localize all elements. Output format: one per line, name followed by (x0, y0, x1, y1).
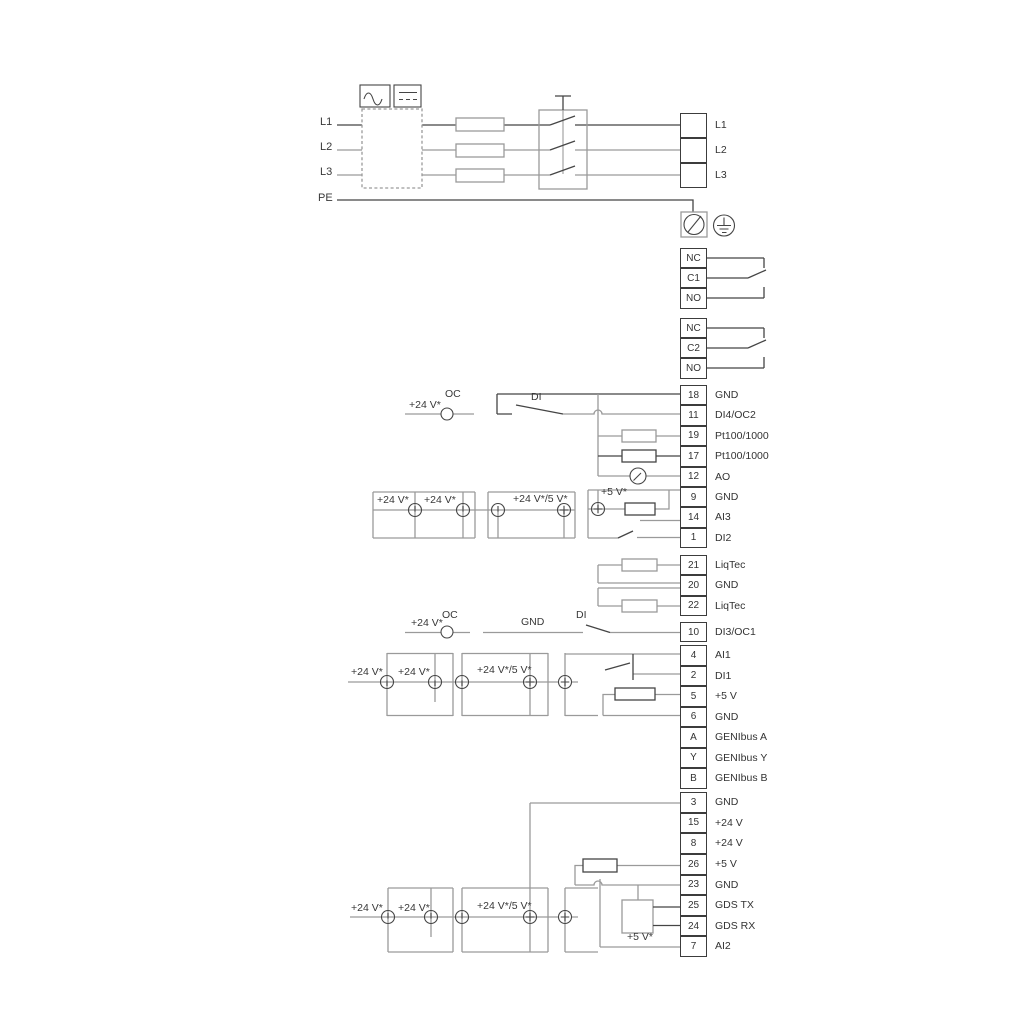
terminal-cell: 23 (680, 875, 707, 896)
terminal-cell: 12 (680, 467, 707, 487)
terminal-cell: 18 (680, 385, 707, 405)
relay-contacts (707, 258, 766, 368)
terminal-label: GND (715, 875, 738, 896)
supply-label: +24 V*/5 V* (477, 901, 532, 912)
di-label: DI (531, 392, 542, 403)
supply-label: +24 V* (409, 400, 441, 411)
terminal-label: +24 V (715, 833, 743, 854)
terminal-cell: A (680, 727, 707, 748)
terminal-cell: Y (680, 748, 707, 769)
terminal-label: GENIbus Y (715, 748, 767, 769)
supply-label: +24 V*/5 V* (477, 665, 532, 676)
terminal-label: DI2 (715, 528, 731, 548)
gds-sensor-box (622, 900, 653, 933)
io1-wiring (405, 394, 680, 476)
terminal-cell: NC (680, 248, 707, 268)
terminal-label: AI1 (715, 645, 731, 666)
supply-label: +24 V* (351, 667, 383, 678)
supply-label: +24 V* (351, 903, 383, 914)
terminal-label: GND (715, 707, 738, 728)
terminal-cell (680, 163, 707, 188)
label-pe-in: PE (318, 192, 333, 204)
supply-label: +24 V* (398, 667, 430, 678)
wiring-diagram: L1 L2 L3 PE +24 V* OC DI +24 V* +24 V* +… (0, 0, 1024, 1024)
converter-symbol (360, 85, 421, 107)
terminal-label: Pt100/1000 (715, 446, 769, 466)
supply-label: +24 V* (377, 495, 409, 506)
terminal-label: AI3 (715, 507, 731, 527)
terminal-cell (680, 138, 707, 163)
terminal-label: DI1 (715, 666, 731, 687)
terminal-cell: 21 (680, 555, 707, 575)
terminal-cell: 10 (680, 622, 707, 642)
terminal-label: +24 V (715, 813, 743, 834)
terminal-label: +5 V (715, 854, 737, 875)
terminal-label: GDS TX (715, 895, 754, 916)
terminal-cell: 24 (680, 916, 707, 937)
ground-symbols (681, 212, 735, 237)
terminal-label: L2 (715, 138, 727, 163)
wiring-svg (0, 0, 1024, 1024)
label-l3-in: L3 (320, 166, 332, 178)
terminal-label: DI4/OC2 (715, 405, 756, 425)
gnd-label: GND (521, 617, 544, 628)
terminal-cell: 26 (680, 854, 707, 875)
terminal-label: GENIbus B (715, 768, 768, 789)
terminal-label: Pt100/1000 (715, 426, 769, 446)
terminal-label: AO (715, 467, 730, 487)
dashed-module-box (362, 109, 422, 188)
terminal-label: DI3/OC1 (715, 622, 756, 642)
terminal-cell: 5 (680, 686, 707, 707)
terminal-cell: NC (680, 318, 707, 338)
terminal-cell: 17 (680, 446, 707, 466)
terminal-cell: 4 (680, 645, 707, 666)
terminal-cell: C1 (680, 268, 707, 288)
terminal-cell: 20 (680, 575, 707, 595)
terminal-cell: 6 (680, 707, 707, 728)
terminal-label: LiqTec (715, 596, 745, 616)
terminal-cell: 15 (680, 813, 707, 834)
terminal-label: GND (715, 385, 738, 405)
di-label: DI (576, 610, 587, 621)
terminal-cell: 3 (680, 792, 707, 813)
mains-wiring (337, 125, 693, 212)
label-l1-in: L1 (320, 116, 332, 128)
analog-output-meter-icon (630, 468, 646, 484)
open-collector-icon (441, 408, 453, 420)
terminal-cell: C2 (680, 338, 707, 358)
terminal-cell: NO (680, 358, 707, 378)
terminal-label: LiqTec (715, 555, 745, 575)
terminal-cell: 22 (680, 596, 707, 616)
terminal-label: L3 (715, 163, 727, 188)
terminal-cell: NO (680, 288, 707, 308)
terminal-cell: 9 (680, 487, 707, 507)
terminal-label: GND (715, 487, 738, 507)
sensor-group-ai2 (350, 803, 680, 952)
oc-label: OC (445, 389, 461, 400)
liqtec-wiring (598, 559, 680, 612)
label-l2-in: L2 (320, 141, 332, 153)
fuses (456, 118, 504, 182)
terminal-cell: 11 (680, 405, 707, 425)
terminal-label: L1 (715, 113, 727, 138)
supply-label: +24 V* (411, 618, 443, 629)
terminal-cell: 1 (680, 528, 707, 548)
terminal-label: GND (715, 575, 738, 595)
terminal-cell: 14 (680, 507, 707, 527)
terminal-label: GDS RX (715, 916, 755, 937)
supply-label: +24 V*/5 V* (513, 494, 568, 505)
oc-label: OC (442, 610, 458, 621)
terminal-cell: 25 (680, 895, 707, 916)
supply-label: +5 V* (601, 487, 627, 498)
terminal-cell: 19 (680, 426, 707, 446)
terminal-label: AI2 (715, 936, 731, 957)
terminal-label: GENIbus A (715, 727, 767, 748)
terminal-cell: B (680, 768, 707, 789)
terminal-label: GND (715, 792, 738, 813)
supply-label: +5 V* (627, 932, 653, 943)
terminal-cell: 7 (680, 936, 707, 957)
terminal-cell (680, 113, 707, 138)
terminal-cell: 2 (680, 666, 707, 687)
supply-label: +24 V* (424, 495, 456, 506)
terminal-label: +5 V (715, 686, 737, 707)
terminal-cell: 8 (680, 833, 707, 854)
supply-label: +24 V* (398, 903, 430, 914)
